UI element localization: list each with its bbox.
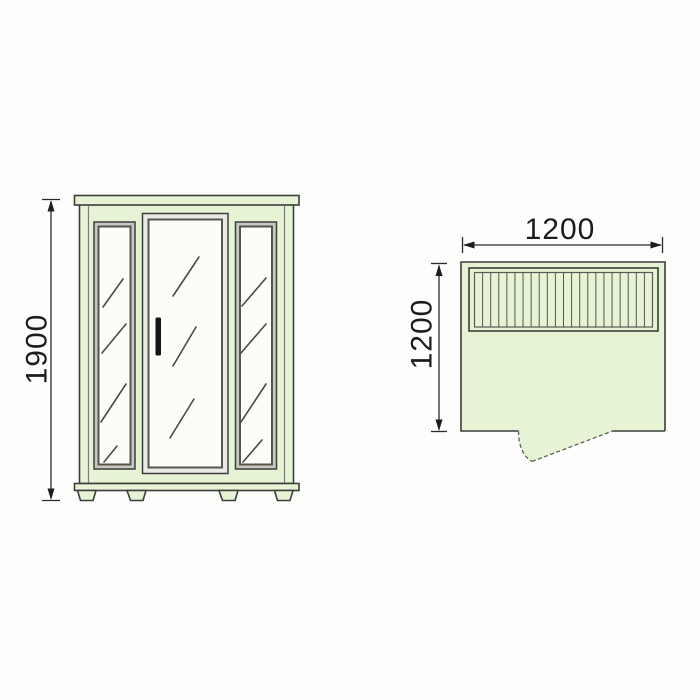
depth-dimension: 1200 [406,264,448,432]
depth-dimension-label: 1200 [406,299,439,370]
dimension-arrow-left [463,242,475,249]
front-elevation-view [75,196,300,501]
dimension-arrow-right [651,242,663,249]
dimension-arrow-up [48,200,55,212]
bench-slats [483,273,645,328]
cabinet-foot [127,491,146,501]
cabinet-foot [78,491,97,501]
door-handle [156,318,162,356]
plan-view [461,262,665,462]
top-cornice-board [75,196,300,206]
dimension-arrow-down [48,489,55,501]
left-window-glass [99,227,131,465]
cabinet-foot [219,491,238,501]
dimension-arrow-up [436,265,443,277]
right-window-glass [240,227,272,465]
drawing-canvas: 1900 1200 [0,0,700,700]
base-plinth-board [75,484,300,491]
height-dimension-label: 1900 [21,314,54,385]
sauna-technical-drawing: 1900 1200 [0,0,700,700]
dimension-arrow-down [436,420,443,432]
width-dimension-label: 1200 [525,213,596,246]
width-dimension: 1200 [463,213,663,253]
height-dimension: 1900 [21,200,61,501]
cabinet-foot [275,491,294,501]
